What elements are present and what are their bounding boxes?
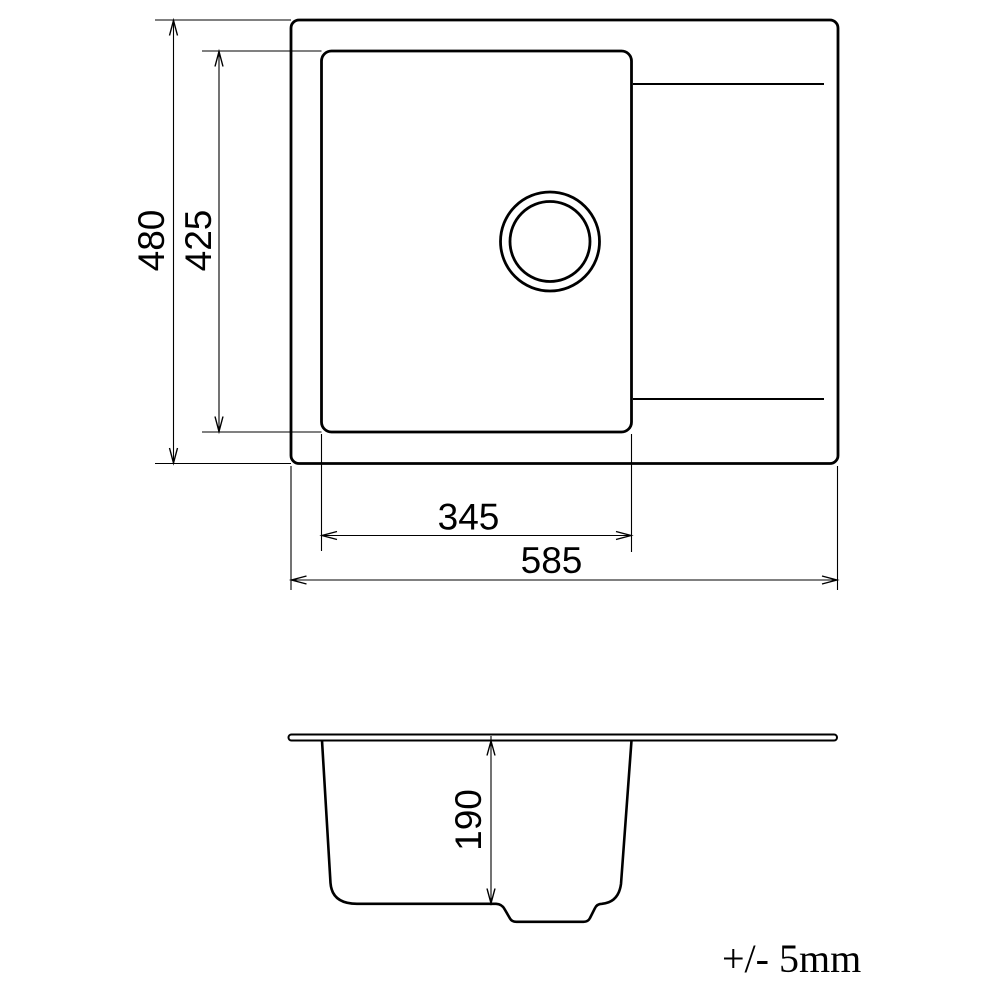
svg-text:345: 345	[438, 497, 500, 538]
svg-text:480: 480	[131, 210, 172, 272]
svg-text:+/- 5mm: +/- 5mm	[722, 936, 861, 981]
svg-text:190: 190	[448, 789, 489, 851]
svg-text:425: 425	[178, 210, 219, 272]
svg-text:585: 585	[521, 540, 583, 581]
